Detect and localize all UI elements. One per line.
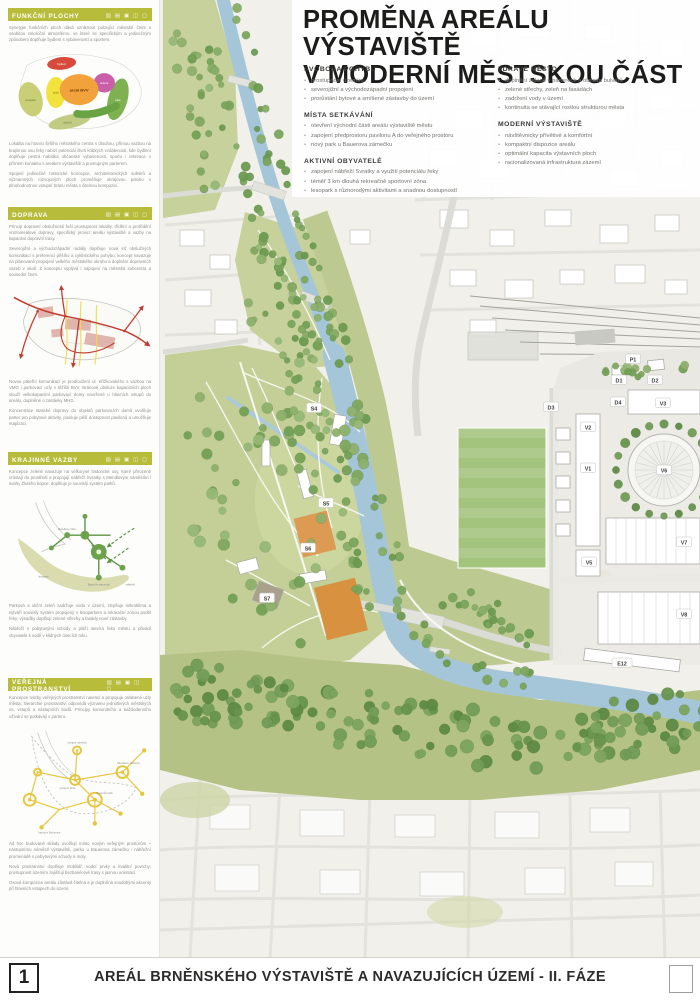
- principles-column-2: ZDRAVÉ MĚSTOdoplnění zeleně v parterech …: [498, 66, 696, 204]
- principle-item: prorůstání bytové a smíšené zástavby do …: [304, 95, 488, 104]
- map-label-D3: D3: [544, 402, 559, 412]
- section-paragraphs: Lokalita na hranici širšího městského ce…: [8, 141, 152, 190]
- svg-text:V1: V1: [585, 466, 592, 472]
- diagram-label: Mendlovo nám.: [58, 527, 77, 531]
- principle-group: AKTIVNÍ OBYVATELÉzapojení nábřeží Svratk…: [304, 158, 488, 196]
- svg-text:S7: S7: [264, 596, 271, 602]
- sidebar-paragraph: Princip dopravní obslužnosti řeší prostu…: [9, 224, 151, 243]
- footer: 1 AREÁL BRNĚNSKÉHO VÝSTAVIŠTĚ A NAVAZUJÍ…: [0, 957, 700, 1000]
- title-panel: PROMĚNA AREÁLU VÝSTAVIŠTĚ V MODERNÍ MĚST…: [292, 0, 700, 197]
- section-header: DOPRAVA ▧ ▤ ▣ ◫ ◻: [8, 207, 152, 220]
- section-header-icons: ▧ ▤ ▣ ◫ ◻: [106, 212, 148, 218]
- principle-heading: AKTIVNÍ OBYVATELÉ: [304, 158, 488, 165]
- section-header-icons: ▧ ▤ ▣ ◫ ◻: [106, 457, 148, 463]
- station-building: [575, 329, 616, 346]
- footer-stamp-box: [669, 965, 693, 993]
- svg-text:V2: V2: [585, 425, 592, 431]
- map-label-P1: P1: [626, 354, 641, 364]
- principle-item: téměř 3 km dlouhá rekreačně sportovní zó…: [304, 178, 488, 187]
- diagram-label: Mendlovo náměstí: [117, 761, 140, 765]
- section-paragraphs: Koncepce tvorby veřejných prostranství n…: [8, 695, 152, 721]
- svg-text:D3: D3: [548, 405, 555, 411]
- sidebar-paragraph: Synergie funkčních ploch dává vzniknout …: [9, 25, 151, 44]
- principle-heading: ZDRAVÉ MĚSTO: [498, 66, 696, 73]
- principle-group: MÍSTA SETKÁVÁNÍotevření východní části a…: [304, 112, 488, 150]
- map-label-V2: V2: [581, 422, 596, 432]
- section-header-icons: ▧ ▤ ▣ ◫ ◻: [106, 13, 148, 19]
- principle-group: SVOBODA POHYBUprostupnost územímseveroji…: [304, 66, 488, 104]
- sidebar-paragraph: Osová kompozice areálu zůstává čitelná a…: [9, 880, 151, 893]
- principle-heading: SVOBODA POHYBU: [304, 66, 488, 73]
- landscape-diagram: Mendlovo nám. Bauerův zámeček lesopark n…: [8, 490, 152, 600]
- diagram-label: nábřeží: [126, 582, 135, 586]
- section-paragraphs: Princip dopravní obslužnosti řeší prostu…: [8, 224, 152, 279]
- sidebar-paragraph: Koncepce tvorby veřejných prostranství n…: [9, 695, 151, 721]
- diagram-label: sport: [53, 90, 59, 94]
- diagram-label: lesopark: [26, 98, 37, 102]
- sidebar-paragraph: Ad hoc budované sklady uvolňují místo no…: [9, 841, 151, 860]
- map-label-V5: V5: [582, 557, 597, 567]
- sidebar-paragraph: Severojižní a východozápadní radiály dop…: [9, 246, 151, 278]
- map-label-D1: D1: [612, 375, 627, 385]
- map-label-D2: D2: [648, 375, 663, 385]
- svg-text:S6: S6: [305, 546, 312, 552]
- section-title: KRAJINNÉ VAZBY: [12, 457, 78, 464]
- principle-item: zapojení nábřeží Svratky a využití poten…: [304, 168, 488, 177]
- principle-item: zapojení předprostoru pavilonu A do veře…: [304, 132, 488, 141]
- principle-heading: MÍSTA SETKÁVÁNÍ: [304, 112, 488, 119]
- svg-text:V6: V6: [661, 468, 668, 474]
- svg-text:V8: V8: [681, 612, 688, 618]
- diagram-label: lesopark: [38, 574, 49, 578]
- sidebar-paragraph: Parková a uliční zeleň zadržuje vodu v ú…: [9, 603, 151, 622]
- section-functional-areas: FUNKČNÍ PLOCHY ▧ ▤ ▣ ◫ ◻ Synergie funkčn…: [8, 8, 152, 207]
- map-label-S4: S4: [307, 403, 322, 413]
- principle-group: ZDRAVÉ MĚSTOdoplnění zeleně v parterech …: [498, 66, 696, 113]
- section-paragraphs: Koncepce zeleně navazuje na velkorysé hi…: [8, 469, 152, 488]
- sidebar-paragraph: Novou páteřní komunikací je prodloužení …: [9, 379, 151, 405]
- section-paragraphs: Parková a uliční zeleň zadržuje vodu v ú…: [8, 603, 152, 639]
- map-label-E12: E12: [612, 658, 632, 668]
- svg-text:D4: D4: [615, 400, 622, 406]
- sidebar-paragraph: Spojení jedinečné historické koncepce, a…: [9, 171, 151, 190]
- sidebar-paragraph: Nová prostranství doplňuje mobiliář, vod…: [9, 864, 151, 877]
- principle-item: zelené střechy, zeleň na fasádách: [498, 86, 696, 95]
- sidebar-paragraph: Koncepce zeleně navazuje na velkorysé hi…: [9, 469, 151, 488]
- diagram-label: Bauerův zámeček: [88, 582, 111, 586]
- map-label-V8: V8: [677, 609, 692, 619]
- public-spaces-diagram: vstupní náměstí Mendlovo náměstí výstavn…: [8, 722, 152, 837]
- svg-text:E12: E12: [617, 661, 627, 667]
- diagram-label: park: [115, 98, 121, 102]
- section-paragraphs: Novou páteřní komunikací je prodloužení …: [8, 379, 152, 428]
- principles-column-1: SVOBODA POHYBUprostupnost územímseveroji…: [304, 66, 488, 204]
- principle-item: racionalizovaná infrastruktura zázemí: [498, 159, 696, 168]
- map-label-V3: V3: [656, 398, 671, 408]
- principle-heading: MODERNÍ VÝSTAVIŠTĚ: [498, 121, 696, 128]
- svg-text:D2: D2: [652, 378, 659, 384]
- section-header: VEŘEJNÁ PROSTRANSTVÍ ▧ ▤ ▣ ◫ ◻: [8, 678, 152, 691]
- principle-item: prostupnost územím: [304, 77, 488, 86]
- section-public-spaces: VEŘEJNÁ PROSTRANSTVÍ ▧ ▤ ▣ ◫ ◻ Koncepce …: [8, 678, 152, 946]
- principle-item: kompaktní dispozice areálu: [498, 141, 696, 150]
- svg-text:P1: P1: [630, 357, 637, 363]
- section-title: DOPRAVA: [12, 212, 48, 219]
- functional-areas-diagram: areál BVV bydlení sport kultura park les…: [8, 46, 152, 138]
- diagram-label: Bauerův park: [97, 791, 114, 795]
- principle-item: lesopark s různorodými aktivitami a snad…: [304, 187, 488, 196]
- diagram-label: výstavní třída: [59, 786, 76, 790]
- sidebar-paragraph: Lokalita na hranici širšího městského ce…: [9, 141, 151, 167]
- diagram-label: nábřeží: [63, 120, 72, 124]
- diagram-label: kampus Bohunice: [39, 831, 61, 835]
- map-label-V7: V7: [677, 537, 692, 547]
- principle-item: zadržení vody v území: [498, 95, 696, 104]
- diagram-label: vstupní náměstí: [67, 741, 87, 745]
- principles: SVOBODA POHYBUprostupnost územímseveroji…: [304, 66, 696, 204]
- section-title: FUNKČNÍ PLOCHY: [12, 13, 80, 20]
- diagram-label: kultura: [100, 81, 109, 85]
- section-paragraphs: Synergie funkčních ploch dává vzniknout …: [8, 25, 152, 44]
- sports-pitch: [458, 428, 546, 568]
- svg-text:V3: V3: [660, 401, 667, 407]
- principle-item: severojižní a východozápadní propojení: [304, 86, 488, 95]
- map-label-S7: S7: [260, 593, 275, 603]
- transport-diagram: [8, 281, 152, 376]
- principle-item: doplnění zeleně v parterech a obnova bul…: [498, 77, 696, 86]
- diagram-label: bydlení: [57, 62, 66, 66]
- sidebar-paragraph: Koncentrace statické dopravy do objektů …: [9, 408, 151, 427]
- principle-item: nový park u Bauerova zámečku: [304, 141, 488, 150]
- sidebar: FUNKČNÍ PLOCHY ▧ ▤ ▣ ◫ ◻ Synergie funkčn…: [0, 0, 160, 958]
- svg-text:S5: S5: [323, 501, 330, 507]
- section-header-icons: ▧ ▤ ▣ ◫ ◻: [107, 680, 148, 692]
- section-header: FUNKČNÍ PLOCHY ▧ ▤ ▣ ◫ ◻: [8, 8, 152, 21]
- map-label-D4: D4: [611, 397, 626, 407]
- sidebar-paragraph: Nábřeží s pobytovými schody a pláží otev…: [9, 626, 151, 639]
- map-label-V1: V1: [581, 463, 596, 473]
- svg-text:V5: V5: [586, 560, 593, 566]
- principle-item: optimální kapacita výstavních ploch: [498, 150, 696, 159]
- svg-text:V7: V7: [681, 540, 688, 546]
- map-label-S5: S5: [319, 498, 334, 508]
- section-landscape: KRAJINNÉ VAZBY ▧ ▤ ▣ ◫ ◻ Koncepce zeleně…: [8, 452, 152, 678]
- footer-title: AREÁL BRNĚNSKÉHO VÝSTAVIŠTĚ A NAVAZUJÍCÍ…: [0, 969, 700, 985]
- section-transport: DOPRAVA ▧ ▤ ▣ ◫ ◻ Princip dopravní obslu…: [8, 207, 152, 452]
- svg-text:D1: D1: [616, 378, 623, 384]
- diagram-label-bvv: areál BVV: [70, 87, 89, 92]
- principle-item: otevření východní části areálu výstavišt…: [304, 122, 488, 131]
- section-header: KRAJINNÉ VAZBY ▧ ▤ ▣ ◫ ◻: [8, 452, 152, 465]
- title-line-1: PROMĚNA AREÁLU VÝSTAVIŠTĚ: [303, 7, 700, 62]
- section-title: VEŘEJNÁ PROSTRANSTVÍ: [12, 679, 107, 693]
- section-paragraphs: Ad hoc budované sklady uvolňují místo no…: [8, 841, 152, 893]
- principle-group: MODERNÍ VÝSTAVIŠTĚnávštěvnicky přívětivé…: [498, 121, 696, 168]
- principle-item: návštěvnicky přívětivé a komfortní: [498, 132, 696, 141]
- map-label-S6: S6: [301, 543, 316, 553]
- svg-text:S4: S4: [311, 406, 318, 412]
- map-label-V6: V6: [657, 465, 672, 475]
- principle-item: kontinuita se stávající rostlou struktur…: [498, 104, 696, 113]
